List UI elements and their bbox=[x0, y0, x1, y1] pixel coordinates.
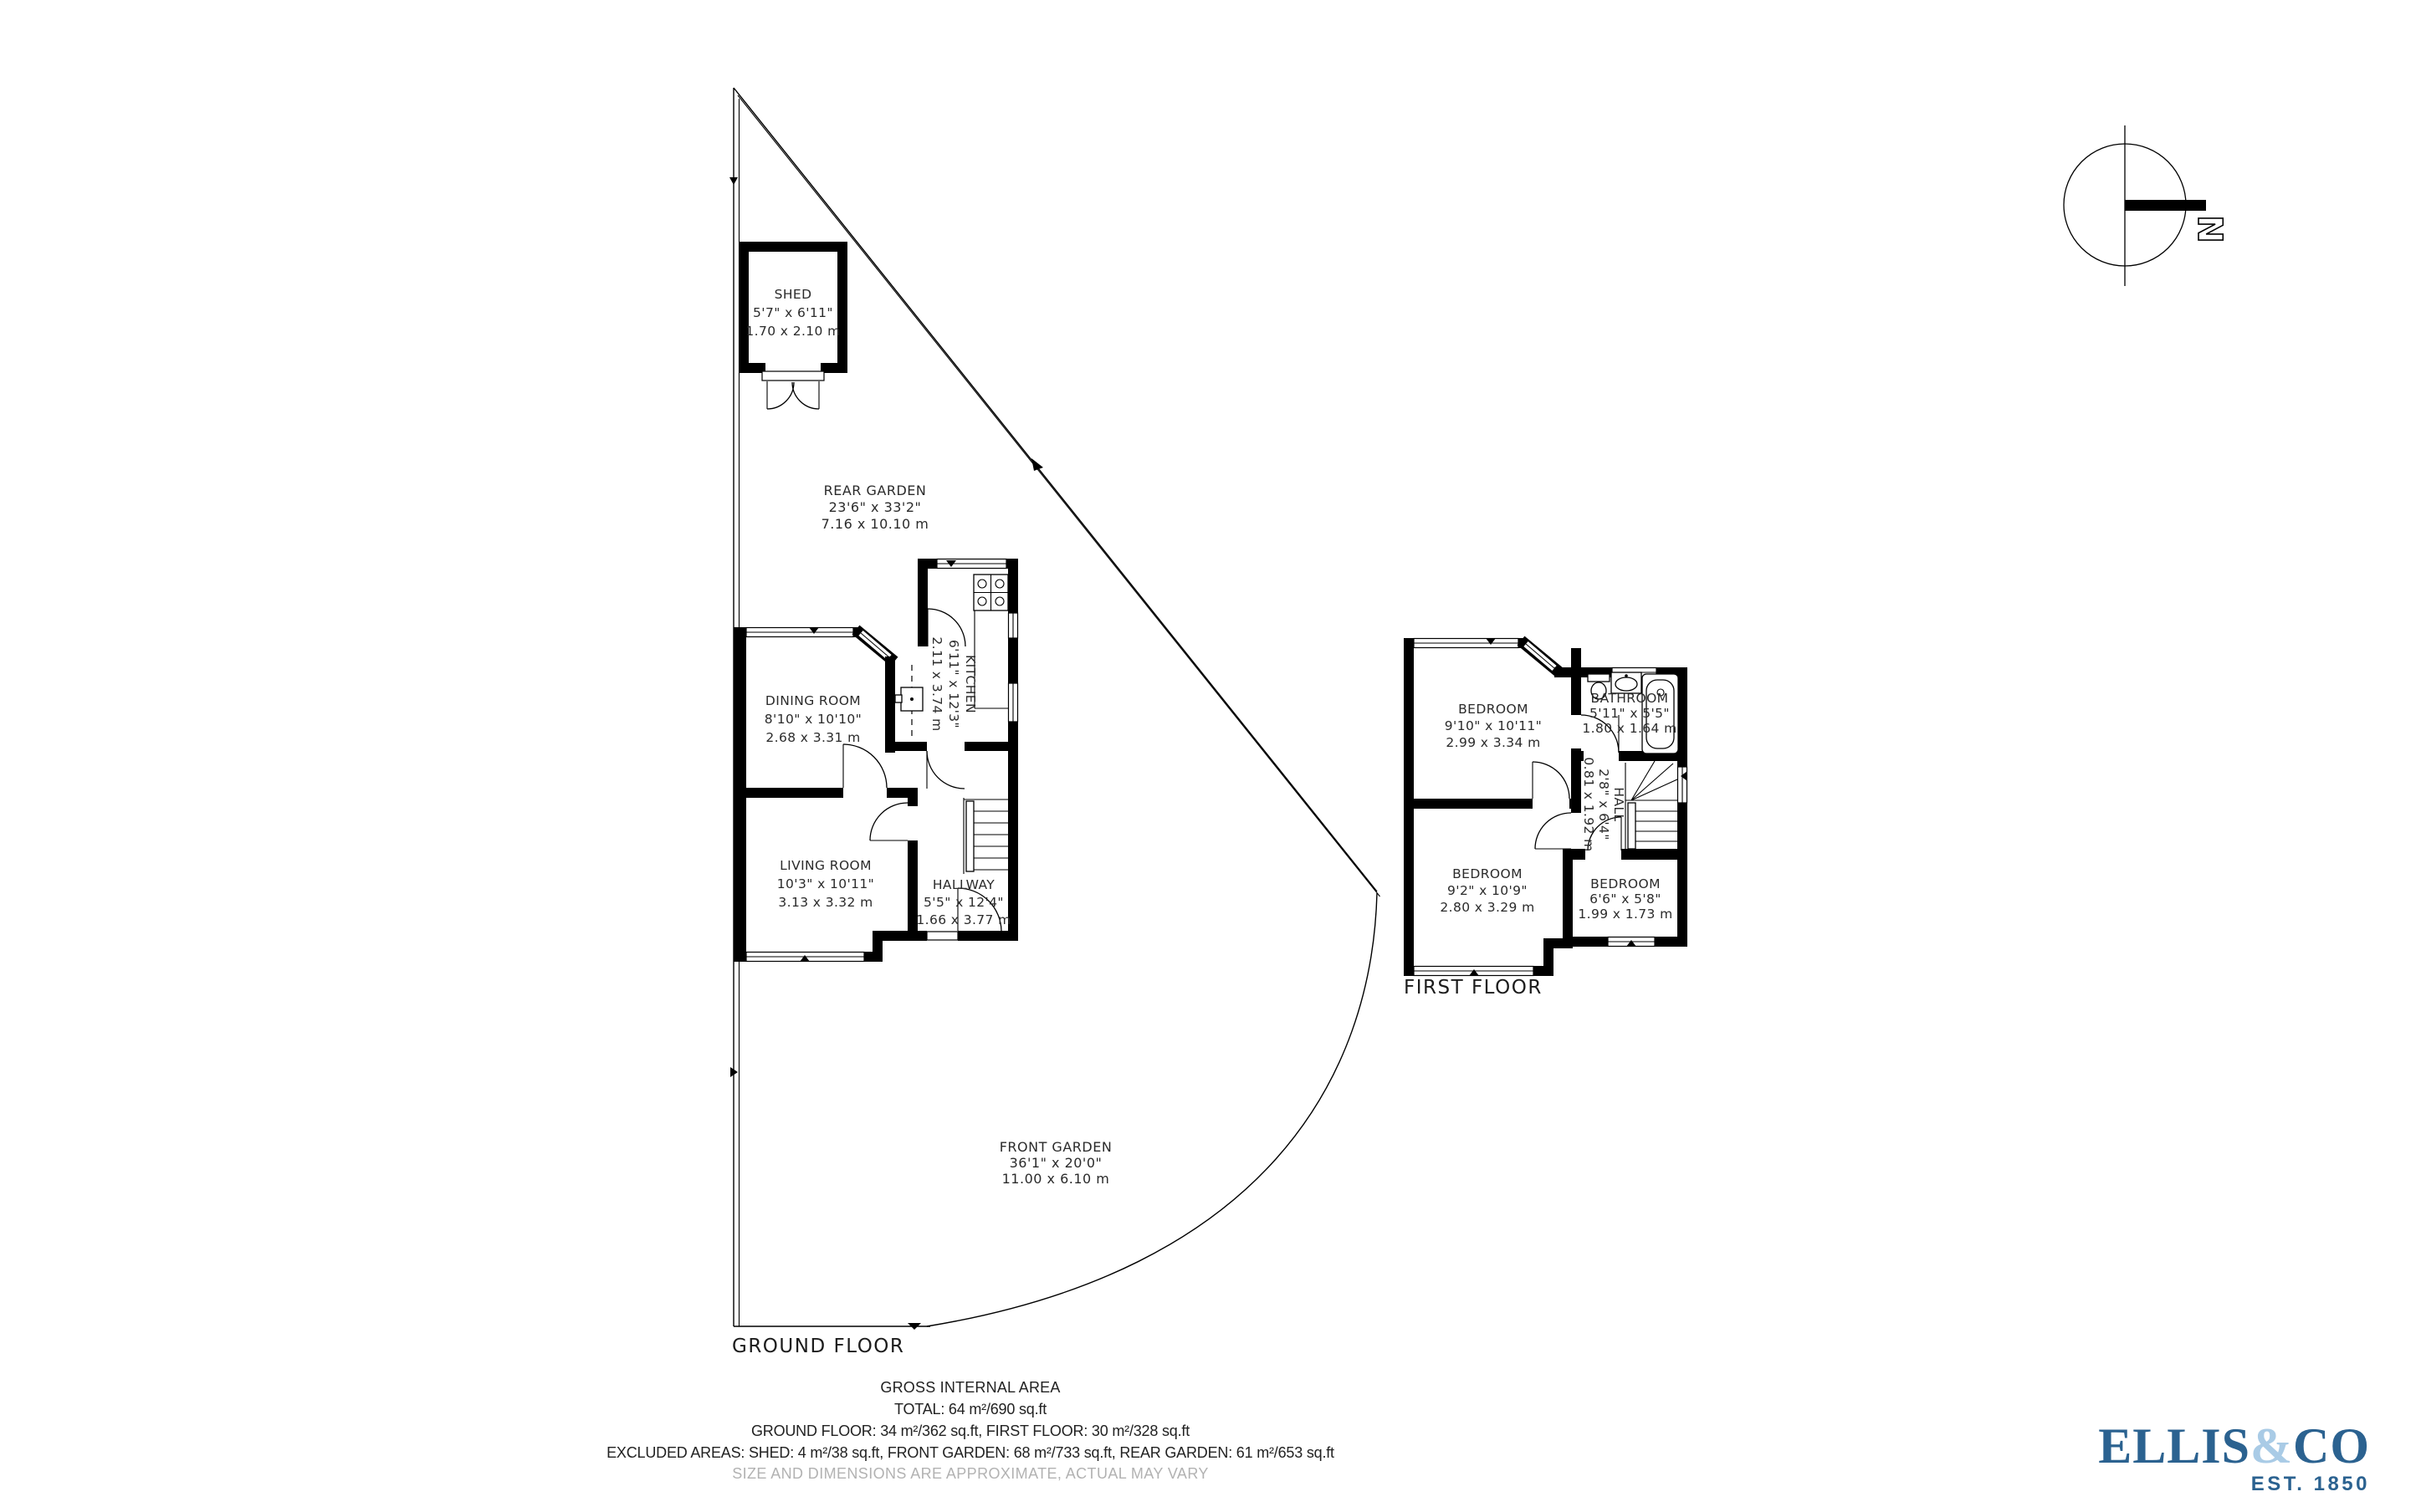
hall-imperial: 2'8" x 6'4" bbox=[1596, 769, 1611, 840]
summary-floors: GROUND FLOOR: 34 m²/362 sq.ft, FIRST FLO… bbox=[751, 1423, 1190, 1439]
summary-excluded: EXCLUDED AREAS: SHED: 4 m²/38 sq.ft, FRO… bbox=[607, 1444, 1334, 1461]
hallway-imperial: 5'5" x 12'4" bbox=[924, 895, 1004, 910]
bedroom2-imperial: 9'2" x 10'9" bbox=[1447, 883, 1528, 898]
bathroom-name: BATHROOM bbox=[1591, 691, 1669, 706]
hall-name: HALL bbox=[1611, 787, 1626, 821]
boundary-marker bbox=[729, 177, 738, 185]
shed-door-arc bbox=[792, 382, 819, 409]
first-floor-title: FIRST FLOOR bbox=[1404, 977, 1543, 999]
hallway-metric: 1.66 x 3.77 m bbox=[916, 912, 1011, 927]
bedroom3-name: BEDROOM bbox=[1590, 876, 1661, 891]
kitchen-name: KITCHEN bbox=[963, 655, 978, 713]
shed-label-imperial: 5'7" x 6'11" bbox=[753, 305, 833, 320]
area-summary: GROSS INTERNAL AREA TOTAL: 64 m²/690 sq.… bbox=[607, 1379, 1334, 1482]
logo-co: CO bbox=[2293, 1418, 2370, 1474]
north-letter: N bbox=[2190, 215, 2229, 243]
hallway-label: HALLWAY 5'5" x 12'4" 1.66 x 3.77 m bbox=[916, 877, 1011, 927]
ground-floor-plan: DINING ROOM 8'10" x 10'10" 2.68 x 3.31 m… bbox=[732, 559, 1018, 1357]
boundary-marker bbox=[1031, 458, 1043, 471]
shed-door-arc bbox=[767, 382, 794, 409]
front-garden-name: FRONT GARDEN bbox=[1000, 1139, 1113, 1155]
front-garden-metric: 11.00 x 6.10 m bbox=[1002, 1171, 1110, 1187]
bedroom3-imperial: 6'6" x 5'8" bbox=[1589, 891, 1661, 907]
kitchen-metric: 2.11 x 3.74 m bbox=[929, 636, 944, 731]
living-room-imperial: 10'3" x 10'11" bbox=[777, 876, 874, 891]
front-garden-imperial: 36'1" x 20'0" bbox=[1010, 1155, 1103, 1171]
shed: SHED 5'7" x 6'11" 1.70 x 2.10 m bbox=[739, 242, 847, 409]
dining-room-metric: 2.68 x 3.31 m bbox=[765, 730, 860, 745]
rear-garden-name: REAR GARDEN bbox=[824, 483, 927, 498]
bedroom3-metric: 1.99 x 1.73 m bbox=[1578, 907, 1672, 922]
living-room-label: LIVING ROOM 10'3" x 10'11" 3.13 x 3.32 m bbox=[777, 858, 874, 910]
rear-garden-imperial: 23'6" x 33'2" bbox=[829, 499, 922, 515]
bedroom2-metric: 2.80 x 3.29 m bbox=[1440, 900, 1534, 915]
bedroom1-imperial: 9'10" x 10'11" bbox=[1445, 718, 1542, 733]
ground-floor-title: GROUND FLOOR bbox=[732, 1336, 904, 1357]
dining-room-name: DINING ROOM bbox=[765, 693, 861, 708]
hallway-name: HALLWAY bbox=[933, 877, 995, 892]
agency-logo: ELLIS&CO EST. 1850 bbox=[2098, 1418, 2370, 1495]
logo-ampersand: & bbox=[2250, 1418, 2293, 1474]
north-compass-icon: N bbox=[2064, 125, 2229, 286]
bedroom1-name: BEDROOM bbox=[1458, 702, 1528, 717]
bedroom1-metric: 2.99 x 3.34 m bbox=[1446, 735, 1540, 750]
bedroom1-label: BEDROOM 9'10" x 10'11" 2.99 x 3.34 m bbox=[1445, 702, 1542, 750]
summary-total: TOTAL: 64 m²/690 sq.ft bbox=[894, 1401, 1047, 1417]
first-floor-plan: BEDROOM 9'10" x 10'11" 2.99 x 3.34 m BAT… bbox=[1404, 638, 1687, 999]
rear-garden-label: REAR GARDEN 23'6" x 33'2" 7.16 x 10.10 m bbox=[822, 483, 929, 532]
stairs-first bbox=[1625, 761, 1677, 849]
floorplan-canvas: SHED 5'7" x 6'11" 1.70 x 2.10 m REAR GAR… bbox=[0, 0, 2421, 1512]
shed-label-metric: 1.70 x 2.10 m bbox=[745, 324, 840, 339]
boiler-unit bbox=[895, 687, 923, 711]
dining-room-label: DINING ROOM 8'10" x 10'10" 2.68 x 3.31 m bbox=[765, 693, 862, 745]
front-garden-label: FRONT GARDEN 36'1" x 20'0" 11.00 x 6.10 … bbox=[1000, 1139, 1113, 1187]
summary-title: GROSS INTERNAL AREA bbox=[880, 1379, 1060, 1396]
stove-icon bbox=[974, 575, 1008, 610]
hall-label: HALL 2'8" x 6'4" 0.81 x 1.92 m bbox=[1581, 757, 1626, 851]
dining-room-imperial: 8'10" x 10'10" bbox=[765, 712, 862, 727]
kitchen-imperial: 6'11" x 12'3" bbox=[946, 640, 961, 728]
hall-metric: 0.81 x 1.92 m bbox=[1581, 757, 1596, 851]
stairs-ground bbox=[964, 798, 1008, 874]
bathroom-label: BATHROOM 5'11" x 5'5" 1.80 x 1.64 m bbox=[1582, 691, 1676, 736]
logo-est: EST. 1850 bbox=[2251, 1473, 2370, 1495]
living-room-metric: 3.13 x 3.32 m bbox=[778, 895, 873, 910]
bathroom-metric: 1.80 x 1.64 m bbox=[1582, 721, 1676, 736]
summary-disclaimer: SIZE AND DIMENSIONS ARE APPROXIMATE, ACT… bbox=[732, 1465, 1209, 1482]
bedroom2-label: BEDROOM 9'2" x 10'9" 2.80 x 3.29 m bbox=[1440, 866, 1534, 915]
living-room-name: LIVING ROOM bbox=[780, 858, 872, 873]
logo-wordmark: ELLIS&CO bbox=[2098, 1418, 2370, 1474]
logo-ellis: ELLIS bbox=[2098, 1418, 2250, 1474]
kitchen-label: KITCHEN 6'11" x 12'3" 2.11 x 3.74 m bbox=[929, 636, 978, 731]
bedroom2-name: BEDROOM bbox=[1452, 866, 1523, 881]
shed-label-name: SHED bbox=[775, 287, 812, 302]
bathroom-imperial: 5'11" x 5'5" bbox=[1589, 706, 1670, 721]
rear-garden-metric: 7.16 x 10.10 m bbox=[822, 516, 929, 532]
bedroom3-label: BEDROOM 6'6" x 5'8" 1.99 x 1.73 m bbox=[1578, 876, 1672, 922]
